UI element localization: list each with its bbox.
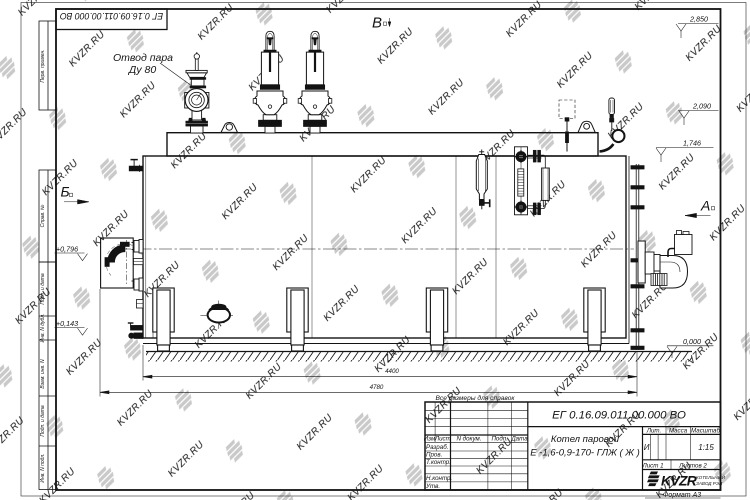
svg-text:Т.контр.: Т.контр. bbox=[426, 459, 451, 466]
svg-text:Подп.: Подп. bbox=[491, 436, 507, 443]
svg-text:Утв.: Утв. bbox=[425, 483, 440, 490]
svg-text:В: В bbox=[372, 15, 382, 32]
svg-text:Котел паровой: Котел паровой bbox=[551, 434, 620, 445]
svg-text:А: А bbox=[700, 198, 710, 214]
svg-text:4780: 4780 bbox=[370, 384, 384, 391]
svg-text:ЕГ 0.16.09.011.00.000 ВО: ЕГ 0.16.09.011.00.000 ВО bbox=[552, 410, 686, 422]
svg-text:Все размеры для справок: Все размеры для справок bbox=[436, 394, 516, 402]
svg-text:Лит.: Лит. bbox=[646, 428, 662, 435]
svg-text:Разраб.: Разраб. bbox=[426, 444, 448, 451]
svg-text:KVZR: KVZR bbox=[661, 474, 697, 489]
svg-text:2,850: 2,850 bbox=[689, 15, 708, 24]
svg-text:Масштаб: Масштаб bbox=[691, 428, 720, 435]
svg-text:+0,143: +0,143 bbox=[56, 319, 78, 328]
svg-text:Дата: Дата bbox=[510, 436, 528, 443]
svg-text:ЕГ 0.16.09.011.00.000 ВО: ЕГ 0.16.09.011.00.000 ВО bbox=[60, 11, 163, 21]
svg-text:Справ. №: Справ. № bbox=[40, 204, 46, 227]
svg-text:Б: Б bbox=[61, 184, 70, 200]
svg-text:2,090: 2,090 bbox=[692, 101, 711, 110]
svg-text:Подп. и дата: Подп. и дата bbox=[40, 273, 46, 305]
svg-text:Е -1,6-0,9-170- ГЛЖ ( Ж ): Е -1,6-0,9-170- ГЛЖ ( Ж ) bbox=[530, 448, 640, 459]
svg-text:Н.контр.: Н.контр. bbox=[426, 475, 452, 482]
svg-text:Лист: Лист bbox=[434, 436, 451, 443]
svg-text:N докум.: N докум. bbox=[456, 436, 481, 443]
svg-text:Ду 80: Ду 80 bbox=[128, 64, 157, 76]
svg-text:Взам. инв. N: Взам. инв. N bbox=[40, 359, 46, 389]
svg-text:1:15: 1:15 bbox=[698, 443, 714, 452]
svg-text:0,000: 0,000 bbox=[683, 337, 701, 346]
svg-text:+0,796: +0,796 bbox=[56, 245, 78, 254]
svg-text:Подп. и дата: Подп. и дата bbox=[40, 405, 46, 437]
svg-text:Масса: Масса bbox=[669, 428, 688, 435]
svg-text:Инв. N подл.: Инв. N подл. bbox=[40, 453, 46, 482]
svg-text:Отвод пара: Отвод пара bbox=[113, 52, 173, 64]
svg-text:Перв. примен.: Перв. примен. bbox=[40, 49, 46, 82]
svg-text:ЗАВОД РЭП: ЗАВОД РЭП bbox=[696, 481, 723, 486]
svg-text:Листов 2: Листов 2 bbox=[678, 462, 707, 469]
svg-text:Лист 1: Лист 1 bbox=[641, 462, 663, 469]
svg-text:И: И bbox=[644, 443, 650, 452]
svg-text:КОТЕЛЬНЫЙ: КОТЕЛЬНЫЙ bbox=[696, 473, 726, 480]
svg-text:Пров.: Пров. bbox=[426, 452, 442, 459]
svg-text:Инв. N дубл.: Инв. N дубл. bbox=[40, 314, 46, 343]
svg-text:4400: 4400 bbox=[385, 368, 399, 375]
svg-text:1,746: 1,746 bbox=[683, 138, 701, 147]
